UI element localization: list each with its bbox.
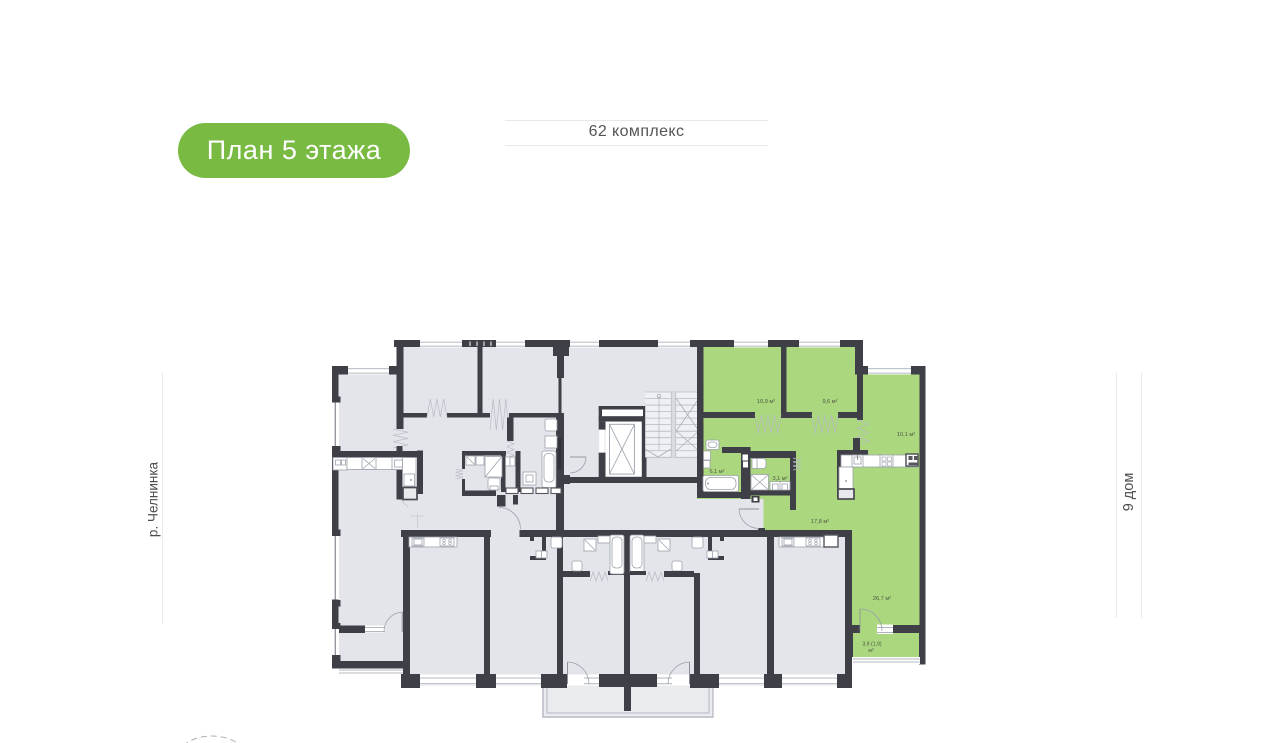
svg-text:17,8 м²: 17,8 м² (811, 519, 829, 525)
svg-text:10,9 м²: 10,9 м² (757, 399, 775, 405)
svg-text:3,1 м²: 3,1 м² (772, 476, 787, 482)
svg-text:6,1 м²: 6,1 м² (709, 469, 724, 475)
svg-text:м²: м² (868, 648, 874, 654)
svg-text:3,9 (1,9): 3,9 (1,9) (862, 642, 882, 648)
svg-text:9,6 м²: 9,6 м² (822, 399, 837, 405)
svg-text:26,7 м²: 26,7 м² (873, 596, 891, 602)
svg-text:10,1 м²: 10,1 м² (897, 432, 915, 438)
